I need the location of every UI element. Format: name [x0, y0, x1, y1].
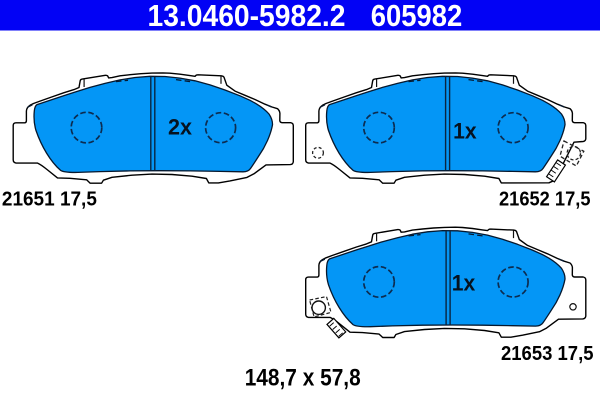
- svg-text:21652 17,5: 21652 17,5: [499, 187, 591, 210]
- svg-text:21653 17,5: 21653 17,5: [501, 342, 594, 365]
- svg-text:605982: 605982: [371, 0, 463, 33]
- svg-text:21651 17,5: 21651 17,5: [2, 188, 97, 211]
- svg-text:2x: 2x: [168, 114, 193, 139]
- svg-text:1x: 1x: [453, 119, 477, 144]
- svg-text:1x: 1x: [452, 270, 476, 295]
- svg-text:13.0460-5982.2: 13.0460-5982.2: [148, 0, 346, 33]
- svg-text:148,7 x 57,8: 148,7 x 57,8: [245, 364, 361, 391]
